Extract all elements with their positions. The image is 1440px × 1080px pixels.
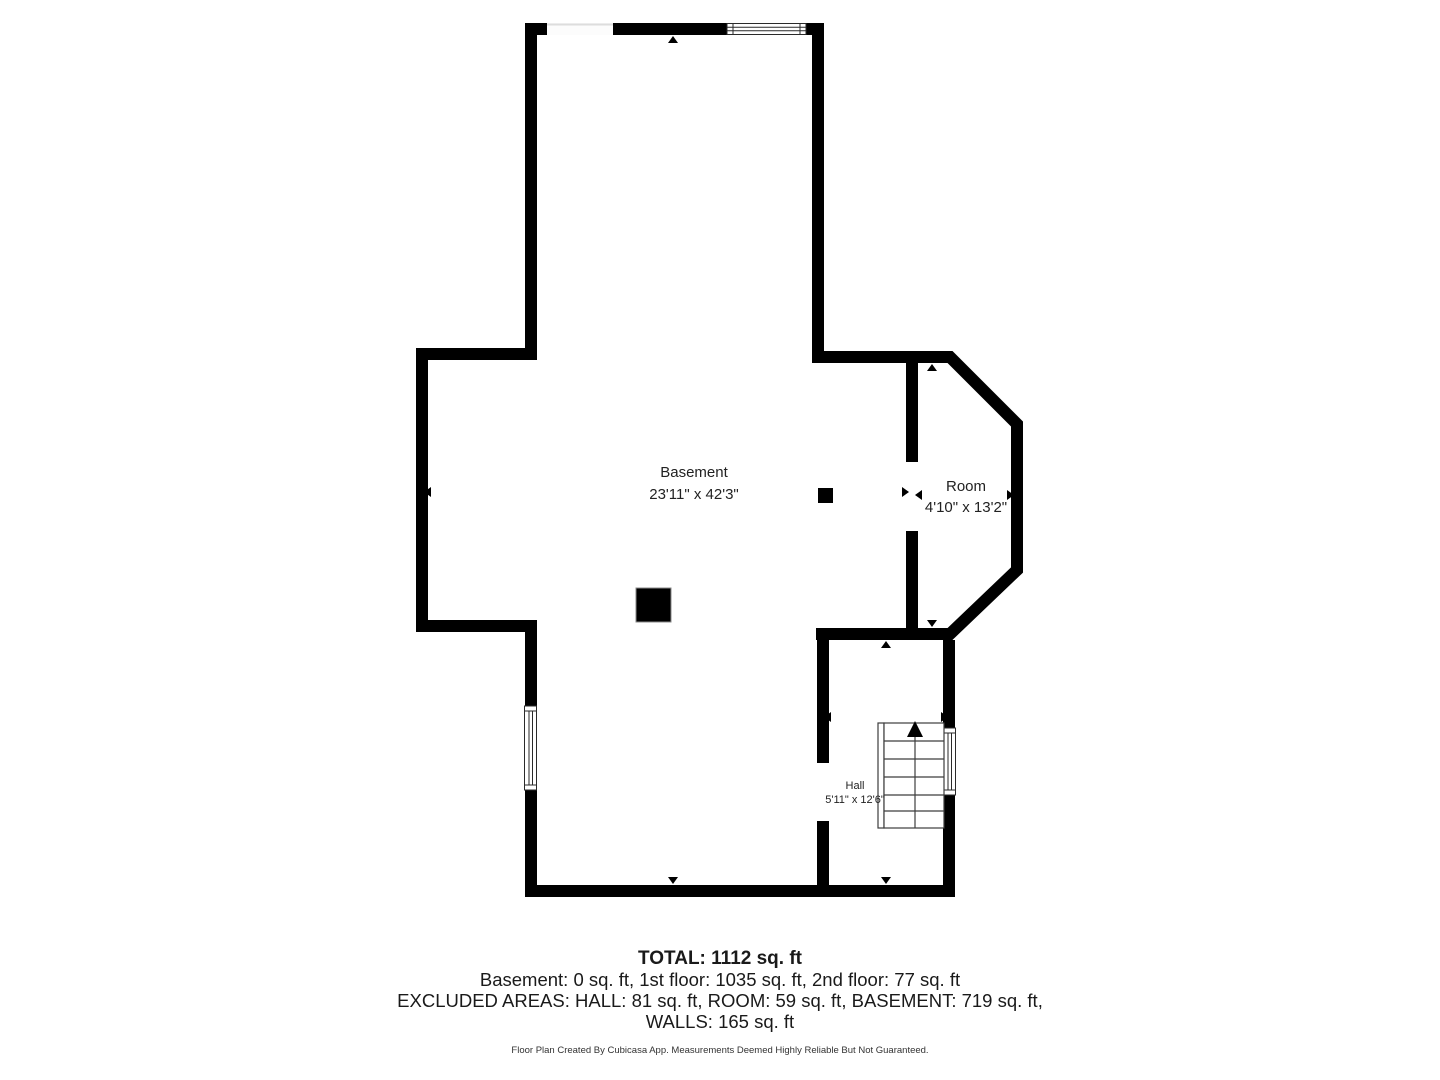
window-hall-right [944, 728, 956, 795]
basement-name: Basement [649, 462, 739, 484]
marker-basement-bottom-icon [668, 877, 678, 884]
wall-bumpout-top [416, 348, 537, 360]
wall-bumpout-bottom [416, 620, 537, 632]
wall-bottom [525, 885, 955, 897]
wall-bumpout-left [416, 348, 428, 632]
marker-room-bottom-icon [927, 620, 937, 627]
column-large [636, 588, 671, 622]
basement-dimensions: 23'11" x 42'3" [649, 484, 739, 506]
marker-basement-top-icon [668, 36, 678, 43]
stairs-stringer [878, 723, 884, 828]
wall-left-upper [525, 23, 537, 358]
window-top [727, 24, 806, 35]
wall-top-mid [613, 23, 727, 35]
floors-area-line: Basement: 0 sq. ft, 1st floor: 1035 sq. … [0, 969, 1440, 990]
room-label: Room 4'10" x 13'2" [925, 476, 1007, 518]
wall-hall-left-lower [817, 821, 829, 885]
wall-hall-left-upper [817, 640, 829, 763]
walls-area-line: WALLS: 165 sq. ft [0, 1011, 1440, 1032]
floor-plan-canvas [0, 0, 1440, 1080]
columns [636, 488, 833, 622]
windows [525, 24, 956, 796]
floor-plan-page: Basement 23'11" x 42'3" Room 4'10" x 13'… [0, 0, 1440, 1080]
room-dimensions: 4'10" x 13'2" [925, 497, 1007, 518]
excluded-areas-line: EXCLUDED AREAS: HALL: 81 sq. ft, ROOM: 5… [0, 990, 1440, 1011]
marker-basement-right-icon [902, 487, 909, 497]
stairs-box [884, 723, 944, 828]
wall-left-lower-a [525, 632, 537, 706]
room-name: Room [925, 476, 1007, 497]
total-area-line: TOTAL: 1112 sq. ft [0, 948, 1440, 969]
column-small [818, 488, 833, 503]
hall-dimensions: 5'11" x 12'6" [825, 793, 885, 807]
marker-hall-bottom-icon [881, 877, 891, 884]
wall-top-left-stub [525, 23, 547, 35]
wall-room-left-upper [906, 363, 918, 462]
hall-name: Hall [825, 779, 885, 793]
wall-right-upper [812, 23, 824, 363]
wall-room-left-lower [906, 531, 918, 628]
stairs [878, 721, 944, 828]
window-left [525, 706, 537, 790]
wall-hall-right-lower [943, 795, 955, 885]
marker-hall-top-icon [881, 641, 891, 648]
marker-room-left-icon [915, 490, 922, 500]
disclaimer-text: Floor Plan Created By Cubicasa App. Meas… [0, 1045, 1440, 1056]
area-summary: TOTAL: 1112 sq. ft Basement: 0 sq. ft, 1… [0, 948, 1440, 1032]
marker-room-top-icon [927, 364, 937, 371]
basement-label: Basement 23'11" x 42'3" [649, 462, 739, 506]
hall-label: Hall 5'11" x 12'6" [825, 779, 885, 807]
wall-left-lower-b [525, 790, 537, 885]
